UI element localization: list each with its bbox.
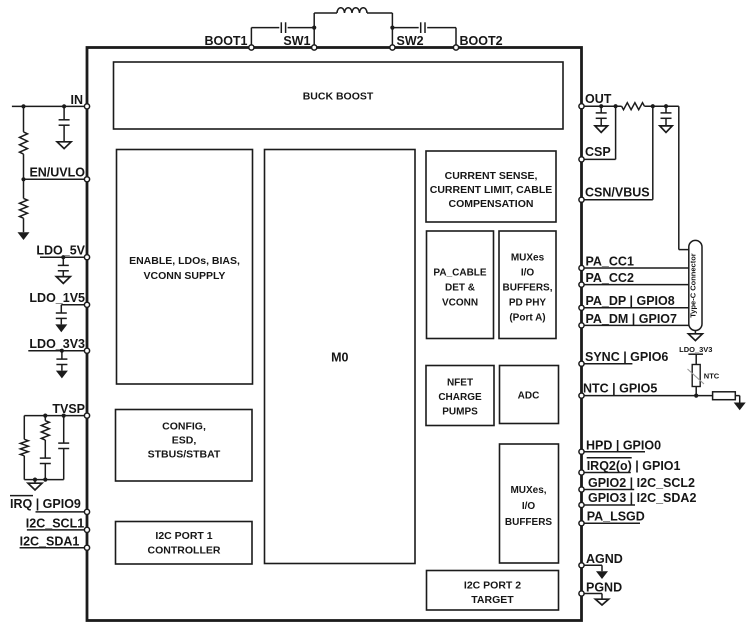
svg-text:COMPENSATION: COMPENSATION: [449, 198, 534, 210]
svg-text:SYNC | GPIO6: SYNC | GPIO6: [585, 350, 668, 364]
svg-text:GPIO2 | I2C_SCL2: GPIO2 | I2C_SCL2: [588, 476, 695, 490]
svg-text:SW2: SW2: [397, 34, 424, 48]
svg-text:LDO_1V5: LDO_1V5: [29, 291, 85, 305]
svg-text:PA_DP | GPIO8: PA_DP | GPIO8: [586, 294, 675, 308]
svg-text:MUXes,: MUXes,: [510, 485, 546, 496]
svg-text:STBUS/STBAT: STBUS/STBAT: [148, 449, 221, 461]
svg-text:Type-C Connector: Type-C Connector: [688, 253, 697, 318]
svg-text:TARGET: TARGET: [471, 594, 514, 606]
svg-text:I2C_SCL1: I2C_SCL1: [26, 517, 84, 531]
svg-text:ENABLE, LDOs, BIAS,: ENABLE, LDOs, BIAS,: [129, 255, 240, 267]
svg-text:BUFFERS: BUFFERS: [505, 517, 553, 528]
svg-text:PA_CC1: PA_CC1: [586, 255, 634, 269]
svg-text:EN/UVLO: EN/UVLO: [29, 166, 85, 180]
svg-text:PUMPS: PUMPS: [442, 407, 478, 418]
svg-text:I/O: I/O: [522, 501, 536, 512]
svg-text:AGND: AGND: [586, 552, 623, 566]
svg-text:LDO_5V: LDO_5V: [36, 244, 85, 258]
svg-text:I2C PORT 1: I2C PORT 1: [155, 530, 212, 542]
svg-text:BOOT2: BOOT2: [460, 34, 503, 48]
svg-text:CONFIG,: CONFIG,: [162, 421, 206, 433]
svg-text:CONTROLLER: CONTROLLER: [148, 545, 221, 557]
svg-text:BUFFERS,: BUFFERS,: [503, 283, 553, 294]
svg-text:CURRENT LIMIT, CABLE: CURRENT LIMIT, CABLE: [430, 184, 553, 196]
svg-text:PA_CC2: PA_CC2: [586, 271, 634, 285]
svg-text:I2C PORT 2: I2C PORT 2: [464, 580, 521, 592]
svg-text:CSP: CSP: [585, 145, 611, 159]
svg-text:CHARGE: CHARGE: [438, 392, 482, 403]
svg-text:IRQ2(o) | GPIO1: IRQ2(o) | GPIO1: [587, 459, 681, 473]
svg-text:PA_DM | GPIO7: PA_DM | GPIO7: [586, 312, 678, 326]
svg-text:BOOT1: BOOT1: [204, 34, 247, 48]
svg-text:GPIO3 | I2C_SDA2: GPIO3 | I2C_SDA2: [588, 491, 696, 505]
svg-text:SW1: SW1: [283, 34, 310, 48]
svg-text:DET &: DET &: [445, 283, 475, 294]
svg-text:NTC: NTC: [704, 372, 720, 381]
svg-text:PA_LSGD: PA_LSGD: [587, 509, 645, 523]
svg-text:IN: IN: [71, 93, 84, 107]
svg-text:I2C_SDA1: I2C_SDA1: [20, 535, 80, 549]
svg-text:PA_CABLE: PA_CABLE: [433, 268, 486, 279]
svg-text:NFET: NFET: [447, 378, 473, 389]
svg-text:CSN/VBUS: CSN/VBUS: [585, 186, 650, 200]
svg-text:ADC: ADC: [518, 391, 540, 402]
svg-text:IRQ | GPIO9: IRQ | GPIO9: [10, 497, 81, 511]
svg-text:VCONN: VCONN: [442, 298, 478, 309]
svg-text:TVSP: TVSP: [52, 402, 85, 416]
svg-text:CURRENT SENSE,: CURRENT SENSE,: [445, 170, 538, 182]
svg-text:BUCK BOOST: BUCK BOOST: [303, 91, 374, 103]
svg-text:LDO_3V3: LDO_3V3: [29, 337, 85, 351]
svg-text:VCONN SUPPLY: VCONN SUPPLY: [144, 270, 226, 282]
svg-text:I/O: I/O: [521, 268, 535, 279]
svg-text:(Port A): (Port A): [509, 313, 545, 324]
svg-text:MUXes: MUXes: [511, 253, 545, 264]
svg-text:PGND: PGND: [586, 580, 622, 594]
svg-text:LDO_3V3: LDO_3V3: [679, 345, 712, 354]
svg-text:ESD,: ESD,: [172, 435, 197, 447]
svg-text:PD PHY: PD PHY: [509, 298, 547, 309]
svg-text:M0: M0: [331, 351, 348, 365]
svg-text:NTC | GPIO5: NTC | GPIO5: [583, 382, 657, 396]
svg-text:HPD | GPIO0: HPD | GPIO0: [586, 439, 661, 453]
svg-text:OUT: OUT: [585, 92, 612, 106]
